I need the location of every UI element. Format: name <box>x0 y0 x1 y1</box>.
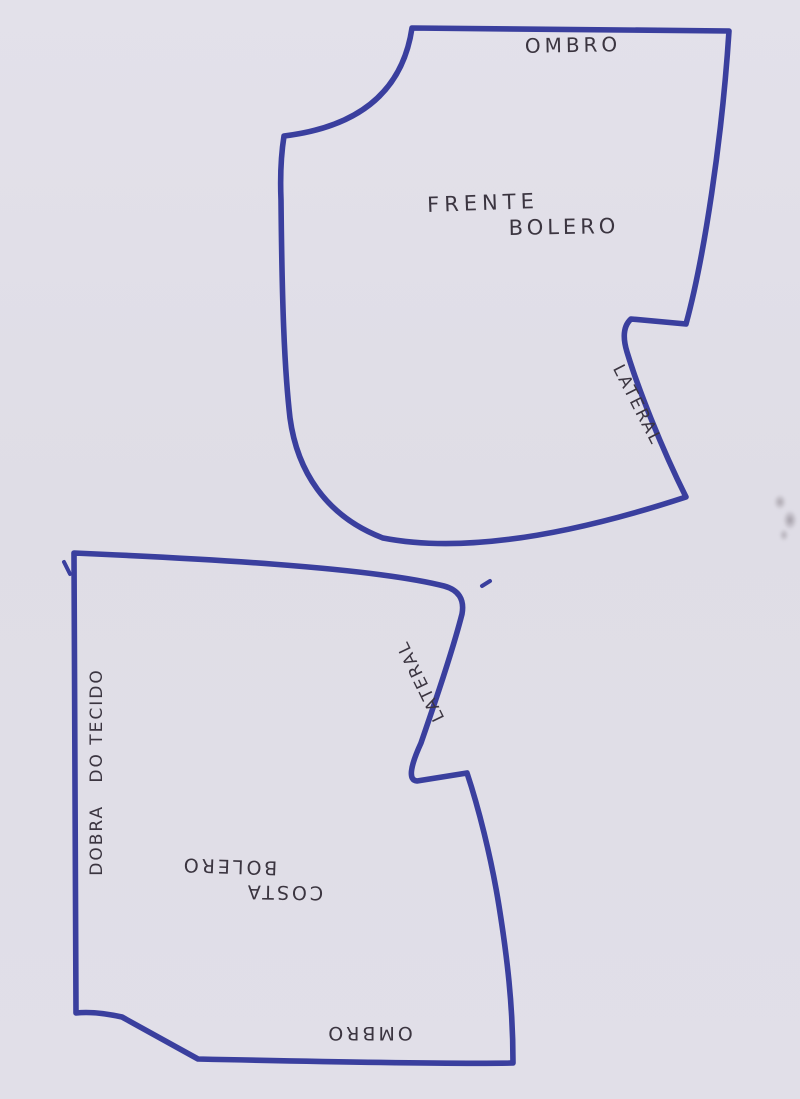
stray-mark-top-edge <box>482 581 490 586</box>
back-piece-outline <box>74 553 513 1063</box>
pattern-outlines <box>0 0 800 1099</box>
back-piece-name-line2: BOLERO <box>180 853 277 878</box>
front-piece-name-line1: FRENTE <box>427 189 540 217</box>
stray-mark-left-corner <box>64 562 70 574</box>
front-piece-name-line2: BOLERO <box>508 214 619 240</box>
front-shoulder-label: OMBRO <box>525 32 622 58</box>
scan-smudge-mark <box>768 488 800 544</box>
back-fold-label: DOBRA DO TECIDO <box>87 668 107 875</box>
back-piece-name-line1: COSTA <box>245 880 324 903</box>
front-piece-outline <box>281 28 729 544</box>
scanned-pattern-page: OMBRO FRENTE BOLERO LATERAL DOBRA DO TEC… <box>0 0 800 1099</box>
back-shoulder-label: OMBRO <box>325 1022 413 1044</box>
